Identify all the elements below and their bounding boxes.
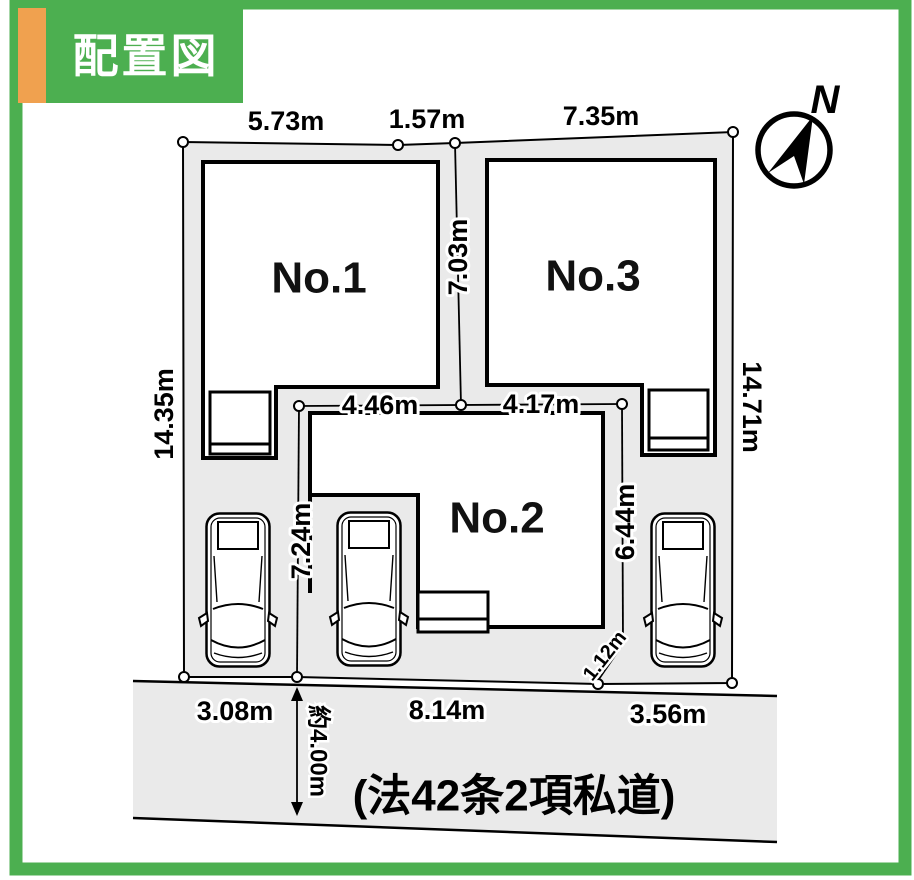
vertex-marker (179, 672, 189, 682)
vertex-marker (393, 140, 403, 150)
dim-inner-right: 6.44m (610, 484, 640, 561)
dim-top-1: 5.73m (248, 106, 325, 136)
plot-no3-label: No.3 (545, 252, 640, 301)
dim-mid-right: 4.17m (503, 389, 580, 419)
header-badge: 配置図 (18, 8, 243, 103)
compass-north-label: N (811, 78, 841, 122)
dim-mid-left: 4.46m (342, 390, 419, 420)
vertex-marker (292, 672, 302, 682)
building-no2-porch (418, 592, 488, 632)
compass-needle (768, 116, 813, 184)
dim-center-vertical: 7.03m (443, 219, 473, 296)
dim-bottom-2: 8.14m (409, 695, 486, 725)
car-icon (199, 514, 277, 667)
dim-left-boundary: 14.35m (149, 368, 179, 460)
vertex-marker (450, 138, 460, 148)
site-plan-page: No.1 No.3 No.2 (0, 0, 914, 880)
dim-bottom-3: 3.56m (630, 699, 707, 729)
site-plan-drawing: No.1 No.3 No.2 (0, 0, 914, 880)
dim-top-2: 1.57m (389, 104, 466, 134)
road-name-label: (法42条2項私道) (353, 772, 676, 821)
vertex-marker (728, 127, 738, 137)
road-width-label: 約4.00m (305, 705, 333, 797)
dim-top-3: 7.35m (563, 101, 640, 131)
dim-inner-left: 7.24m (286, 503, 316, 580)
vertex-marker (727, 678, 737, 688)
car-icon (330, 513, 408, 666)
vertex-marker (456, 400, 466, 410)
vertex-marker (178, 137, 188, 147)
vertex-marker (294, 401, 304, 411)
plot-no1-label: No.1 (271, 254, 366, 303)
compass-icon: N (758, 78, 841, 186)
page-title: 配置図 (73, 30, 220, 82)
car-icon (644, 514, 722, 667)
vertex-marker (617, 399, 627, 409)
building-no3-porch (649, 390, 708, 450)
header-badge-accent (18, 8, 46, 103)
dim-bottom-1: 3.08m (197, 696, 274, 726)
plot-no2-label: No.2 (449, 494, 544, 543)
dim-right-boundary: 14.71m (737, 361, 767, 453)
